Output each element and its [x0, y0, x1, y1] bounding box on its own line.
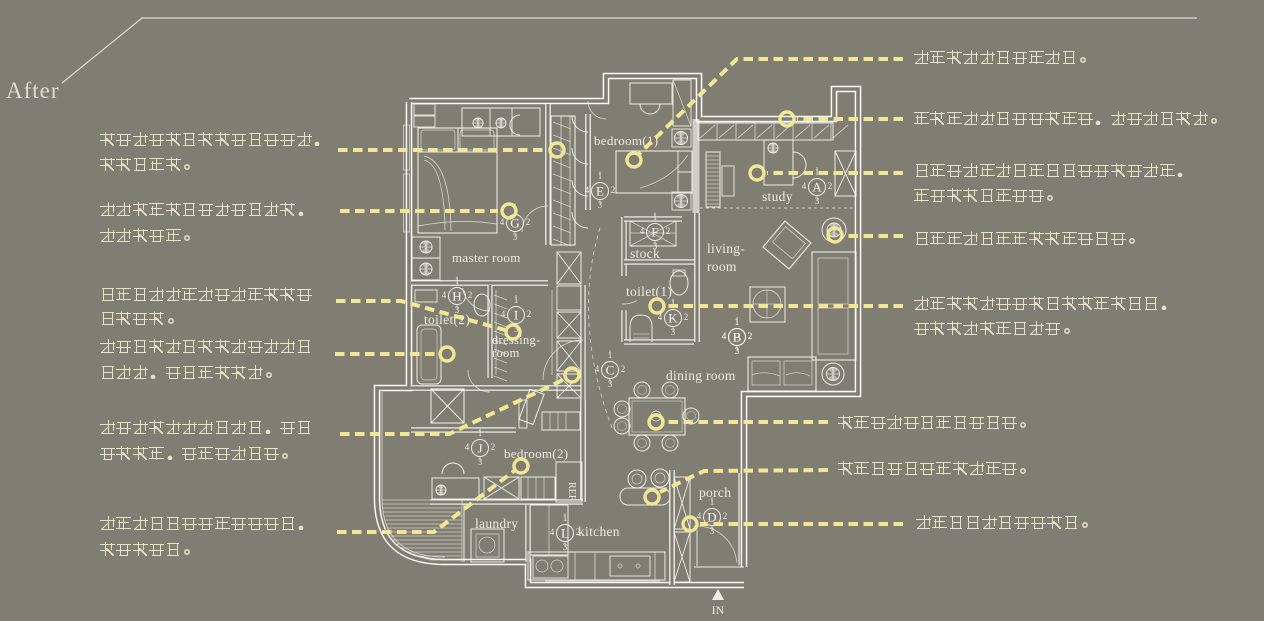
svg-text:E: E	[596, 184, 604, 199]
svg-text:4: 4	[595, 364, 600, 374]
svg-text:H: H	[452, 289, 461, 304]
svg-text:2: 2	[527, 309, 532, 319]
svg-text:I: I	[514, 308, 518, 323]
svg-text:J: J	[477, 441, 482, 456]
svg-text:2: 2	[621, 364, 626, 374]
svg-text:master room: master room	[452, 250, 521, 265]
svg-text:2: 2	[828, 181, 833, 191]
svg-text:2: 2	[526, 217, 531, 227]
svg-text:B: B	[733, 330, 742, 345]
svg-text:bedroom(2): bedroom(2)	[504, 446, 568, 461]
svg-text:2: 2	[491, 442, 496, 452]
svg-text:porch: porch	[699, 485, 731, 500]
svg-text:2: 2	[748, 331, 753, 341]
svg-text:IN: IN	[712, 603, 725, 617]
svg-text:K: K	[668, 311, 678, 326]
svg-text:4: 4	[697, 511, 702, 521]
svg-text:C: C	[606, 363, 615, 378]
svg-text:2: 2	[611, 185, 616, 195]
svg-text:study: study	[762, 189, 793, 204]
svg-text:4: 4	[465, 442, 470, 452]
svg-text:2: 2	[468, 290, 473, 300]
svg-text:2: 2	[684, 312, 689, 322]
svg-text:kitchen: kitchen	[578, 524, 620, 539]
svg-text:2: 2	[576, 527, 581, 537]
svg-text:A: A	[812, 180, 822, 195]
svg-text:4: 4	[640, 226, 645, 236]
svg-text:dining room: dining room	[666, 368, 736, 383]
svg-text:living-: living-	[707, 241, 745, 256]
svg-text:4: 4	[500, 217, 505, 227]
svg-text:room: room	[707, 259, 737, 274]
svg-text:4: 4	[802, 181, 807, 191]
svg-text:F: F	[651, 225, 658, 240]
svg-text:4: 4	[722, 331, 727, 341]
svg-text:4: 4	[585, 185, 590, 195]
svg-text:REF: REF	[566, 482, 577, 501]
svg-text:2: 2	[666, 226, 671, 236]
svg-text:toilet(1): toilet(1)	[626, 284, 672, 299]
svg-text:4: 4	[550, 527, 555, 537]
svg-text:2: 2	[723, 511, 728, 521]
svg-text:4: 4	[442, 290, 447, 300]
